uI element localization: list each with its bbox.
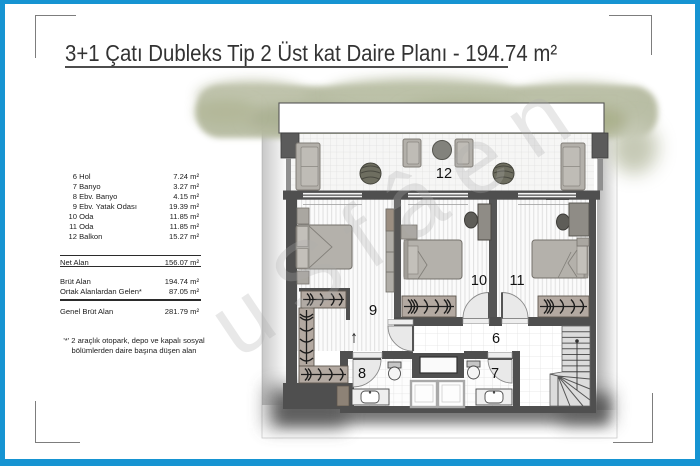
svg-text:6: 6 — [492, 331, 500, 347]
svg-text:10: 10 — [471, 273, 487, 289]
svg-text:11: 11 — [509, 273, 524, 289]
svg-text:7: 7 — [491, 366, 499, 382]
svg-text:9: 9 — [369, 302, 377, 319]
svg-text:8: 8 — [358, 366, 366, 382]
